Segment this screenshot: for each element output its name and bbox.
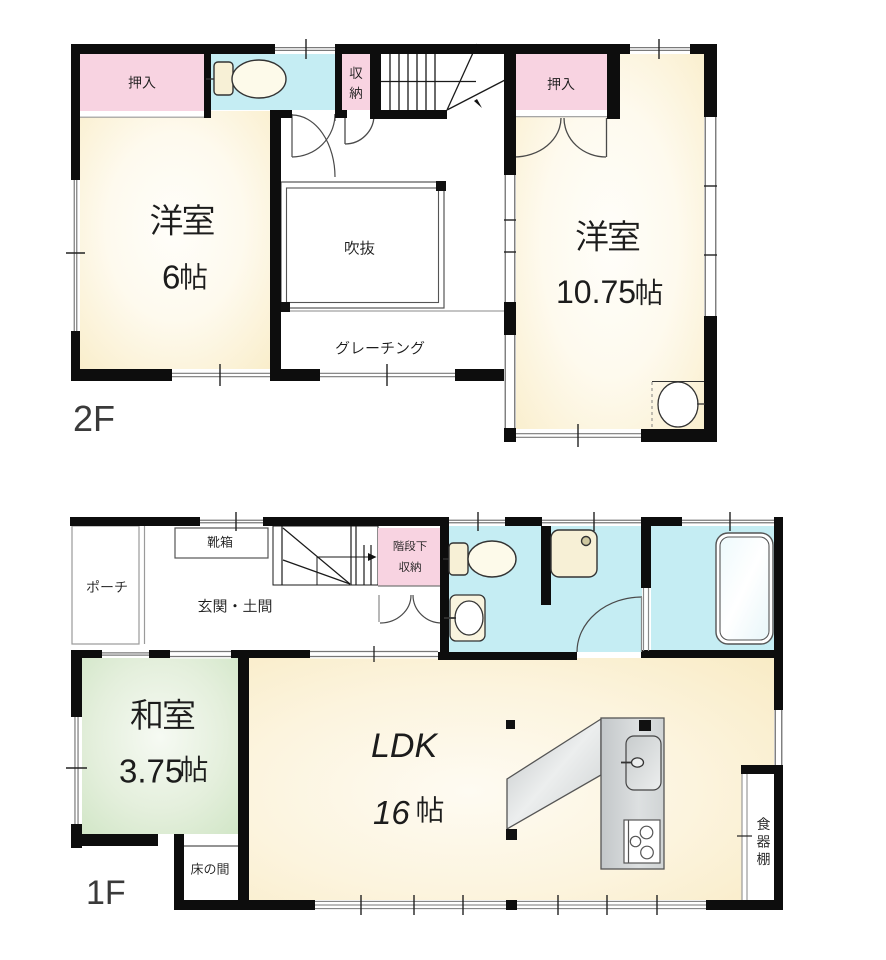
svg-text:10.75: 10.75 [556, 274, 636, 310]
svg-text:LDK: LDK [371, 727, 438, 765]
svg-text:16: 16 [373, 794, 410, 831]
svg-text:6: 6 [162, 259, 180, 296]
svg-text:1F: 1F [86, 874, 126, 912]
svg-text:2F: 2F [73, 398, 115, 439]
svg-text:3.75: 3.75 [119, 753, 183, 790]
